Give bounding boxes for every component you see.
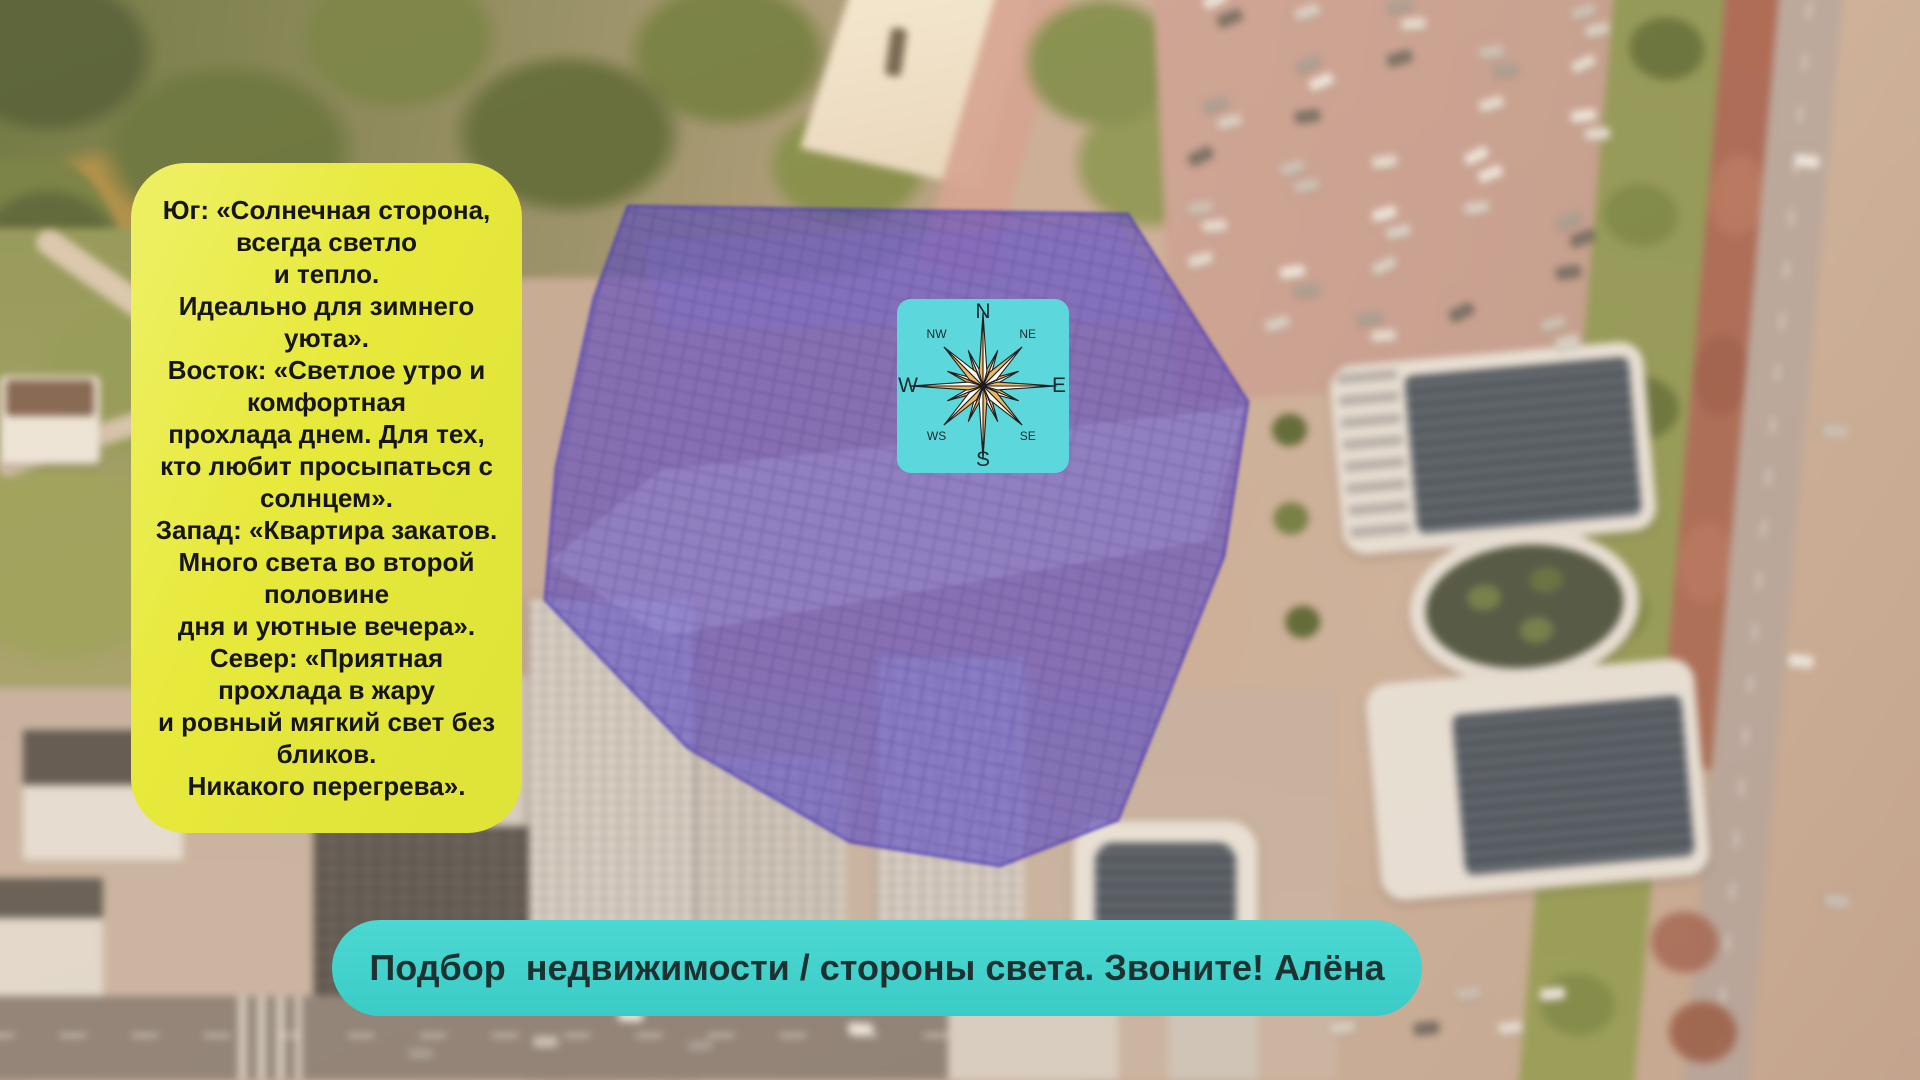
compass-label-ws: WS bbox=[927, 429, 946, 443]
info-card-line: и тепло. bbox=[139, 258, 514, 290]
compass-label-nw: NW bbox=[927, 327, 947, 341]
info-card-line: прохлада в жару bbox=[139, 674, 514, 706]
compass-rose-point bbox=[983, 386, 1056, 390]
info-card-line: прохлада днем. Для тех, bbox=[139, 418, 514, 450]
highlight-texture bbox=[545, 206, 1248, 866]
info-card-line: Восток: «Светлое утро и bbox=[139, 354, 514, 386]
info-card-line: Запад: «Квартира закатов. bbox=[139, 514, 514, 546]
compass-label-ne: NE bbox=[1019, 327, 1036, 341]
info-card-line: Север: «Приятная bbox=[139, 642, 514, 674]
info-card-line: Идеально для зимнего bbox=[139, 290, 514, 322]
cta-banner: Подбор недвижимости / стороны света. Зво… bbox=[332, 920, 1422, 1016]
info-card-line: Много света во второй bbox=[139, 546, 514, 578]
compass-rose-point bbox=[910, 386, 983, 390]
compass-label-e: E bbox=[1052, 374, 1066, 398]
info-card-line: дня и уютные вечера». bbox=[139, 610, 514, 642]
info-card-line: и ровный мягкий свет без bbox=[139, 706, 514, 738]
info-card-line: солнцем». bbox=[139, 482, 514, 514]
compass-label-n: N bbox=[975, 300, 990, 324]
cta-banner-text: Подбор недвижимости / стороны света. Зво… bbox=[369, 947, 1384, 989]
info-card-line: половине bbox=[139, 578, 514, 610]
compass-rose-point bbox=[910, 382, 983, 386]
compass-label-w: W bbox=[898, 374, 918, 398]
compass-label-se: SE bbox=[1020, 429, 1036, 443]
info-card-line: бликов. bbox=[139, 738, 514, 770]
info-card-line: уюта». bbox=[139, 322, 514, 354]
info-card-line: кто любит просыпаться с bbox=[139, 450, 514, 482]
real-estate-ad-poster: N NW NE W E WS SE S Юг: «Солнечная сторо… bbox=[0, 0, 1920, 1080]
info-card-line: всегда светло bbox=[139, 226, 514, 258]
info-card-line: Никакого перегрева». bbox=[139, 770, 514, 802]
compass-rose-icon bbox=[900, 303, 1066, 469]
compass-rose-point bbox=[983, 382, 1056, 386]
compass-label-s: S bbox=[976, 448, 990, 472]
compass-card: N NW NE W E WS SE S bbox=[897, 299, 1069, 473]
info-card: Юг: «Солнечная сторона,всегда светлои те… bbox=[131, 163, 522, 833]
compass-rose-center bbox=[981, 384, 986, 389]
info-card-line: комфортная bbox=[139, 386, 514, 418]
info-card-line: Юг: «Солнечная сторона, bbox=[139, 194, 514, 226]
